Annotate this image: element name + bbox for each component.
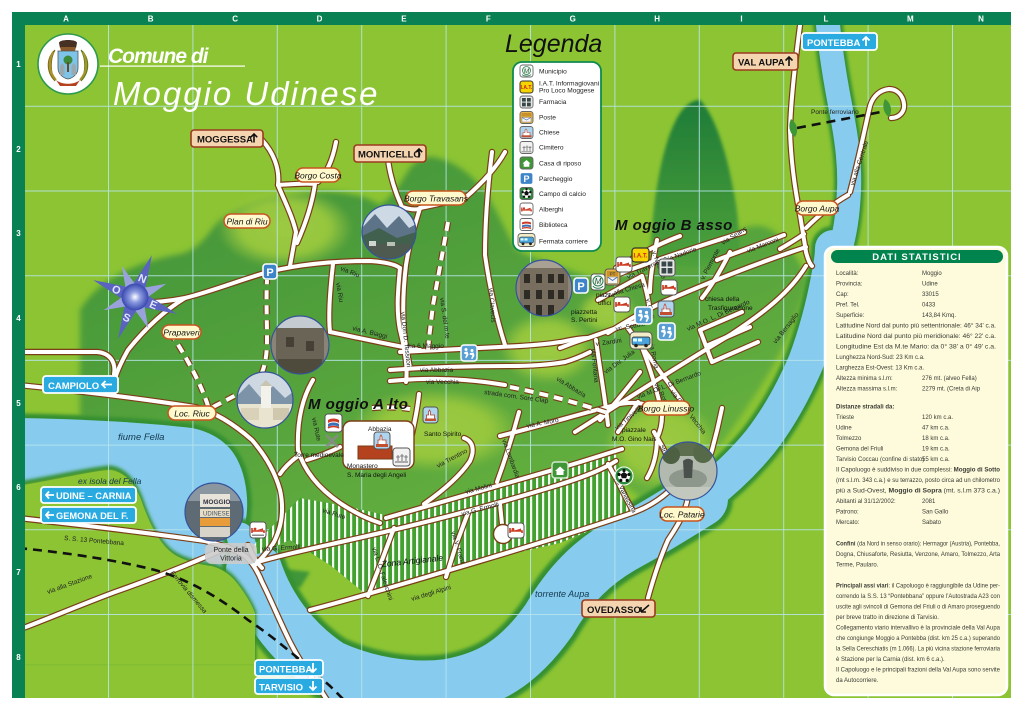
svg-text:ex isola del Fella: ex isola del Fella [78,476,142,486]
svg-text:33015: 33015 [922,292,939,298]
svg-text:Borgo Travasans: Borgo Travasans [404,194,469,204]
svg-text:2: 2 [16,145,21,154]
svg-text:Campo di calcio: Campo di calcio [539,191,586,198]
svg-text:L: L [823,15,828,24]
svg-text:via 6 Maggio: via 6 Maggio [407,343,444,350]
svg-text:Parcheggio: Parcheggio [539,176,573,183]
svg-text:Gemona del Friuli: Gemona del Friuli [836,447,883,453]
svg-text:San Gallo: San Gallo [922,510,949,516]
svg-text:I.A.T. Informagiovani: I.A.T. Informagiovani [539,81,600,88]
svg-text:piazzetta: piazzetta [571,309,597,316]
svg-text:Il Capoluogo e le principali f: Il Capoluogo e le principali frazioni de… [836,668,1001,674]
svg-text:8: 8 [16,653,21,662]
svg-text:5: 5 [16,399,21,408]
svg-text:MONTICELLO: MONTICELLO [358,150,421,161]
svg-text:47 km c.a.: 47 km c.a. [922,426,950,432]
svg-text:Collegamento viario intervalli: Collegamento viario intervallivo è la pr… [836,626,1001,632]
svg-text:PONTEBBA: PONTEBBA [259,665,312,676]
svg-text:M: M [524,68,530,75]
svg-text:Comune di: Comune di [108,45,210,68]
svg-text:Loc. Patarie: Loc. Patarie [659,510,705,520]
svg-text:M: M [907,15,914,24]
svg-text:Terme, Paularo.: Terme, Paularo. [836,563,879,569]
svg-text:Lunghezza Nord-Sud: 23 Km c.a.: Lunghezza Nord-Sud: 23 Km c.a. [836,355,925,361]
svg-text:uscite agli svincoli di Gemona: uscite agli svincoli di Gemona del Friul… [836,605,1001,611]
svg-text:Latitudine Nord dal punto più: Latitudine Nord dal punto più settentrio… [836,324,996,330]
svg-text:143,84 Kmq.: 143,84 Kmq. [922,313,956,319]
svg-text:da Autocorriere.: da Autocorriere. [836,678,879,684]
svg-text:P: P [266,267,273,279]
svg-text:Altezza minima s.l.m:: Altezza minima s.l.m: [836,376,893,382]
svg-text:(mt s.l.m. 343 c.a.) e su terr: (mt s.l.m. 343 c.a.) e su terrazzo, post… [836,478,1001,484]
svg-text:Borgo Linussio: Borgo Linussio [638,404,695,414]
svg-text:Moggio Udinese: Moggio Udinese [113,75,379,112]
svg-text:S. Pertini: S. Pertini [571,317,597,324]
svg-text:Udine: Udine [836,426,852,432]
svg-text:MOGGIO: MOGGIO [203,499,230,506]
svg-text:UDINE – CARNIA: UDINE – CARNIA [56,491,132,501]
svg-text:Latitudine Nord dal punto più: Latitudine Nord dal punto più meridional… [836,334,996,340]
svg-text:I: I [740,15,742,24]
svg-text:7: 7 [16,568,21,577]
svg-text:Mercato:: Mercato: [836,520,860,526]
svg-text:Dogna, Chiusaforte, Resiutta,: Dogna, Chiusaforte, Resiutta, Venzone, A… [836,552,1001,558]
svg-text:Sabato: Sabato [922,520,942,526]
svg-text:E: E [401,15,407,24]
svg-text:Località:: Località: [836,271,859,277]
svg-text:TARVISIO: TARVISIO [259,683,303,694]
svg-text:Loc. Riuc: Loc. Riuc [174,409,210,419]
svg-text:M: M [595,277,602,286]
svg-text:Prapaveri: Prapaveri [163,328,200,338]
svg-text:Ponte ferroviario: Ponte ferroviario [811,109,859,116]
svg-text:3: 3 [16,229,21,238]
svg-text:MOGGESSA: MOGGESSA [197,135,253,146]
svg-text:55 km c.a.: 55 km c.a. [922,457,950,463]
svg-text:C: C [232,15,238,24]
svg-text:H: H [654,15,660,24]
svg-text:Monastero: Monastero [347,463,378,470]
svg-text:M oggio A lto: M oggio A lto [308,396,408,413]
svg-text:Farmacia: Farmacia [539,99,567,106]
svg-text:Trasfigurazione: Trasfigurazione [708,305,753,312]
svg-text:Principali assi viari: il Capo: Principali assi viari: il Capoluogo è ra… [836,584,1000,590]
svg-text:uffici: uffici [598,300,611,307]
svg-text:Abitanti al 31/12/2002:: Abitanti al 31/12/2002: [836,499,896,505]
svg-text:Casa di riposo: Casa di riposo [539,161,581,168]
svg-text:P: P [577,281,584,293]
svg-text:Trieste: Trieste [836,415,855,421]
svg-text:per breve tratto in direzione: per breve tratto in direzione di Tarvisi… [836,615,939,621]
svg-text:Biblioteca: Biblioteca [539,222,568,229]
svg-text:A: A [63,15,69,24]
svg-text:via Abbazia: via Abbazia [420,367,454,374]
svg-text:6: 6 [16,483,21,492]
svg-text:Il Capoluogo è suddiviso in du: Il Capoluogo è suddiviso in due compless… [836,468,1000,474]
svg-text:I.A.T.: I.A.T. [521,85,533,91]
svg-text:Municipio: Municipio [539,69,567,76]
svg-text:piazza: piazza [596,292,615,299]
svg-text:via Vecchia: via Vecchia [426,379,459,386]
svg-text:B: B [148,15,154,24]
svg-text:19 km c.a.: 19 km c.a. [922,447,950,453]
svg-text:Cap:: Cap: [836,292,849,298]
svg-text:I.A.T.: I.A.T. [633,254,647,260]
svg-text:Vittoria: Vittoria [220,556,242,563]
svg-text:Larghezza Est-Ovest: 13 Km c.a: Larghezza Est-Ovest: 13 Km c.a. [836,366,924,372]
svg-text:Confini (da Nord in senso orar: Confini (da Nord in senso orario): Herma… [836,542,1000,548]
svg-text:N: N [978,15,984,24]
svg-text:P: P [523,174,529,184]
svg-text:OVEDASSO: OVEDASSO [587,605,641,616]
svg-text:Altezza massima s.l.m:: Altezza massima s.l.m: [836,387,898,393]
svg-text:PT: PT [610,272,616,277]
svg-text:che congiunge Moggio a Pontebb: che congiunge Moggio a Pontebba (dist. k… [836,636,1001,642]
svg-text:Alberghi: Alberghi [539,207,564,214]
svg-text:fiume Fella: fiume Fella [118,432,164,443]
svg-text:Moggio: Moggio [922,271,942,277]
svg-text:1: 1 [16,60,21,69]
svg-text:UDINESE: UDINESE [203,512,230,518]
svg-text:M.O. Gino Nais: M.O. Gino Nais [612,436,657,443]
svg-text:Ponte della: Ponte della [213,547,248,554]
svg-text:Provincia:: Provincia: [836,282,863,288]
svg-text:VAL AUPA: VAL AUPA [738,58,785,69]
svg-text:la Sella Cereschiatis (m 1.066: la Sella Cereschiatis (m 1.066). La più … [836,647,1001,653]
svg-text:chiesa della: chiesa della [705,296,740,303]
svg-text:2081: 2081 [922,499,936,505]
svg-text:Tarvisio Coccau (confine di st: Tarvisio Coccau (confine di stato) [836,457,924,463]
svg-text:Longitudine Est da M.te Mario:: Longitudine Est da M.te Mario: da 0° 38'… [836,345,996,351]
svg-text:Plan di Riu: Plan di Riu [226,217,267,227]
svg-text:Superficie:: Superficie: [836,313,865,319]
svg-text:Pro Loco Moggese: Pro Loco Moggese [539,88,595,95]
svg-text:Udine: Udine [922,282,938,288]
svg-text:Borgo Aupa: Borgo Aupa [795,204,840,214]
svg-text:Patrono:: Patrono: [836,510,859,516]
svg-text:0433: 0433 [922,303,936,309]
svg-text:Fermata corriere: Fermata corriere [539,239,588,246]
svg-text:più a Sud-Ovest, Moggio di Sop: più a Sud-Ovest, Moggio di Sopra (mt. s.… [836,489,1000,495]
svg-text:Pref. Tel.: Pref. Tel. [836,303,860,309]
svg-text:piazzale: piazzale [622,427,646,434]
svg-text:correndo la S.S. 13 “Pontebban: correndo la S.S. 13 “Pontebbana” oppure … [836,594,1000,600]
svg-text:F: F [486,15,491,24]
svg-text:torrente Aupa: torrente Aupa [535,589,589,599]
svg-text:Santo Spirito: Santo Spirito [424,431,462,438]
svg-text:18 km c.a.: 18 km c.a. [922,436,950,442]
svg-text:S. Maria degli Angeli: S. Maria degli Angeli [347,472,406,479]
svg-text:è Stazione per la Carnia (dist: è Stazione per la Carnia (dist. km 6 c.a… [836,657,945,663]
svg-text:DATI STATISTICI: DATI STATISTICI [872,252,961,263]
svg-text:Torre medioevale: Torre medioevale [294,452,344,459]
svg-text:120 km c.a.: 120 km c.a. [922,415,953,421]
svg-text:PONTEBBA: PONTEBBA [807,38,860,49]
svg-text:M oggio B asso: M oggio B asso [615,217,733,234]
svg-text:D: D [317,15,323,24]
svg-text:Chiese: Chiese [539,130,560,137]
svg-text:2279 mt. (Creta di Aip: 2279 mt. (Creta di Aip [922,387,981,393]
svg-text:4: 4 [16,314,21,323]
svg-text:Distanze stradali da:: Distanze stradali da: [836,405,894,411]
svg-text:G: G [570,15,576,24]
svg-text:Poste: Poste [539,115,556,122]
svg-text:GEMONA DEL F.: GEMONA DEL F. [56,511,128,521]
svg-text:CAMPIOLO: CAMPIOLO [48,381,99,392]
svg-text:276 mt. (alveo Fella): 276 mt. (alveo Fella) [922,376,977,382]
svg-text:Tolmezzo: Tolmezzo [836,436,862,442]
svg-text:Cimitero: Cimitero [539,145,564,152]
svg-text:Legenda: Legenda [505,30,602,58]
svg-text:Borgo Costa: Borgo Costa [294,171,342,181]
